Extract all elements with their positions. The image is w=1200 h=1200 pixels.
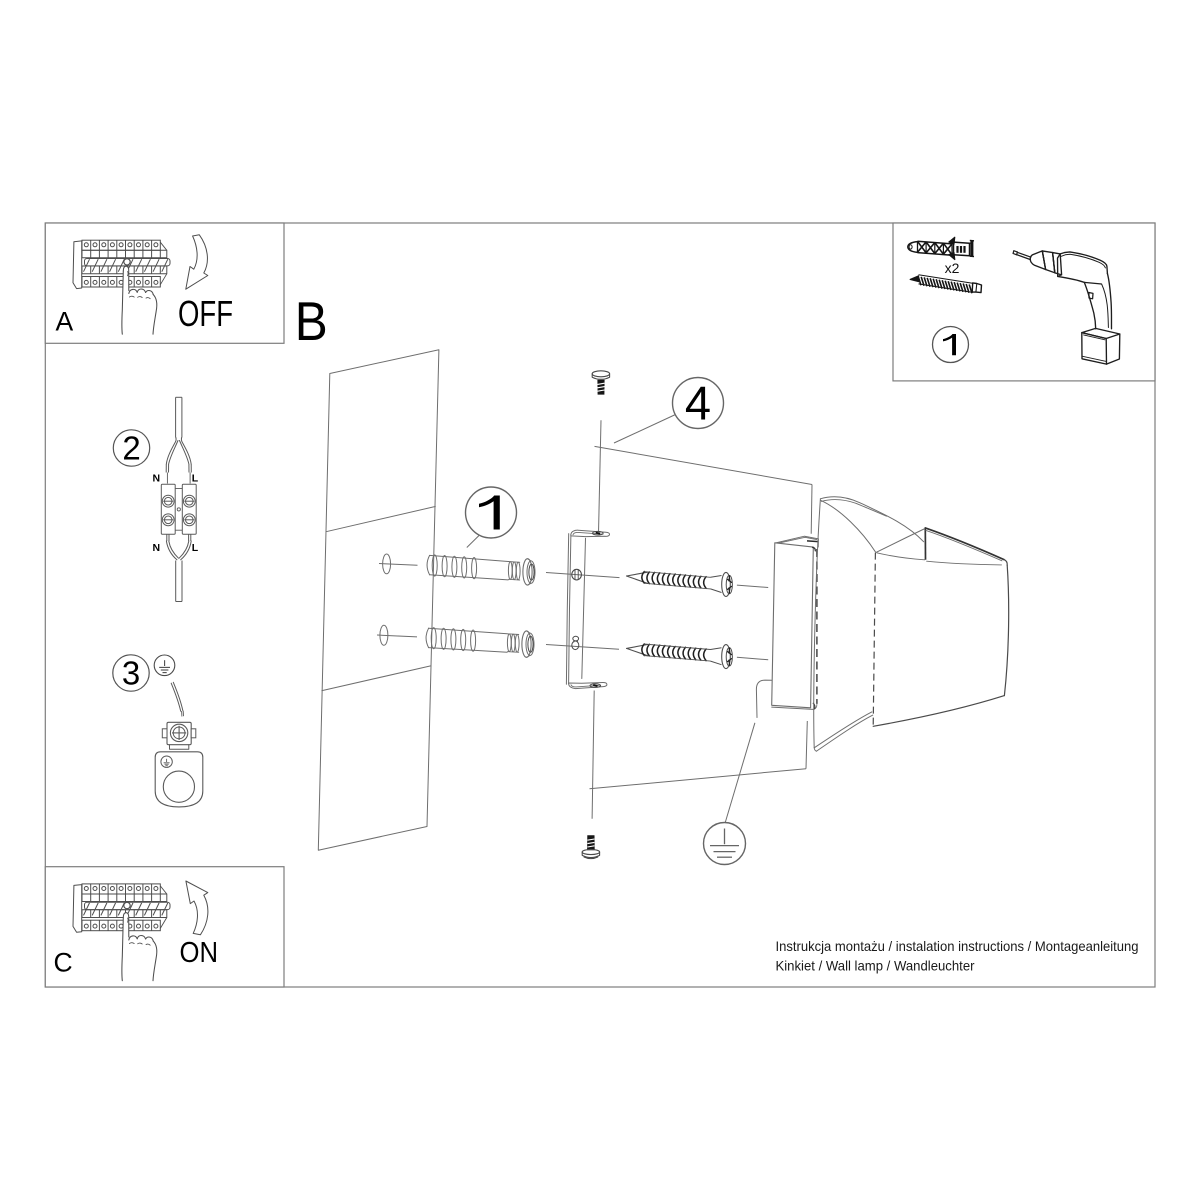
svg-text:ON: ON — [180, 937, 219, 969]
svg-text:x2: x2 — [945, 260, 960, 276]
svg-text:Instrukcja montażu / instalati: Instrukcja montażu / instalation instruc… — [776, 939, 1139, 954]
svg-text:N: N — [153, 542, 161, 554]
svg-text:L: L — [192, 473, 199, 485]
svg-text:3: 3 — [122, 655, 140, 692]
svg-text:C: C — [54, 948, 73, 978]
svg-text:OFF: OFF — [178, 293, 233, 334]
svg-text:B: B — [295, 290, 328, 352]
svg-text:A: A — [56, 307, 74, 337]
svg-text:4: 4 — [685, 377, 711, 430]
svg-text:L: L — [192, 542, 199, 554]
svg-text:N: N — [153, 473, 161, 485]
svg-text:2: 2 — [122, 430, 140, 467]
svg-text:Kinkiet / Wall lamp / Wandleuc: Kinkiet / Wall lamp / Wandleuchter — [776, 958, 975, 973]
